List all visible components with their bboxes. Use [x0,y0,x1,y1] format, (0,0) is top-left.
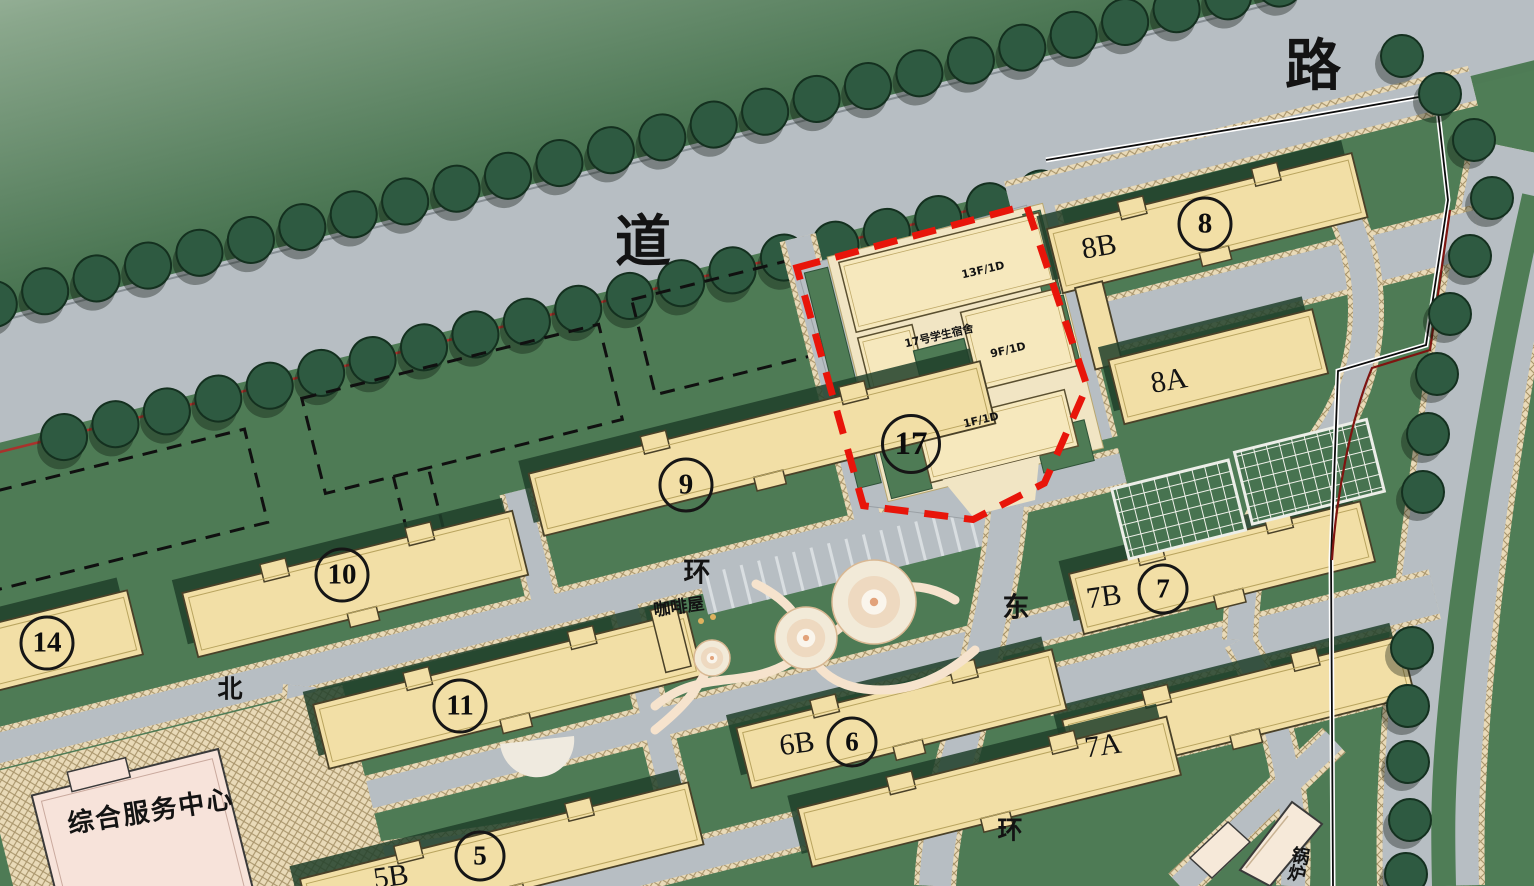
campus-site-plan: 道 路 环 北 东 环 咖啡屋 综合服务中心 锅炉 13F/1D 17号学生宿舍… [0,0,1534,886]
site-plan-map [0,0,1534,886]
